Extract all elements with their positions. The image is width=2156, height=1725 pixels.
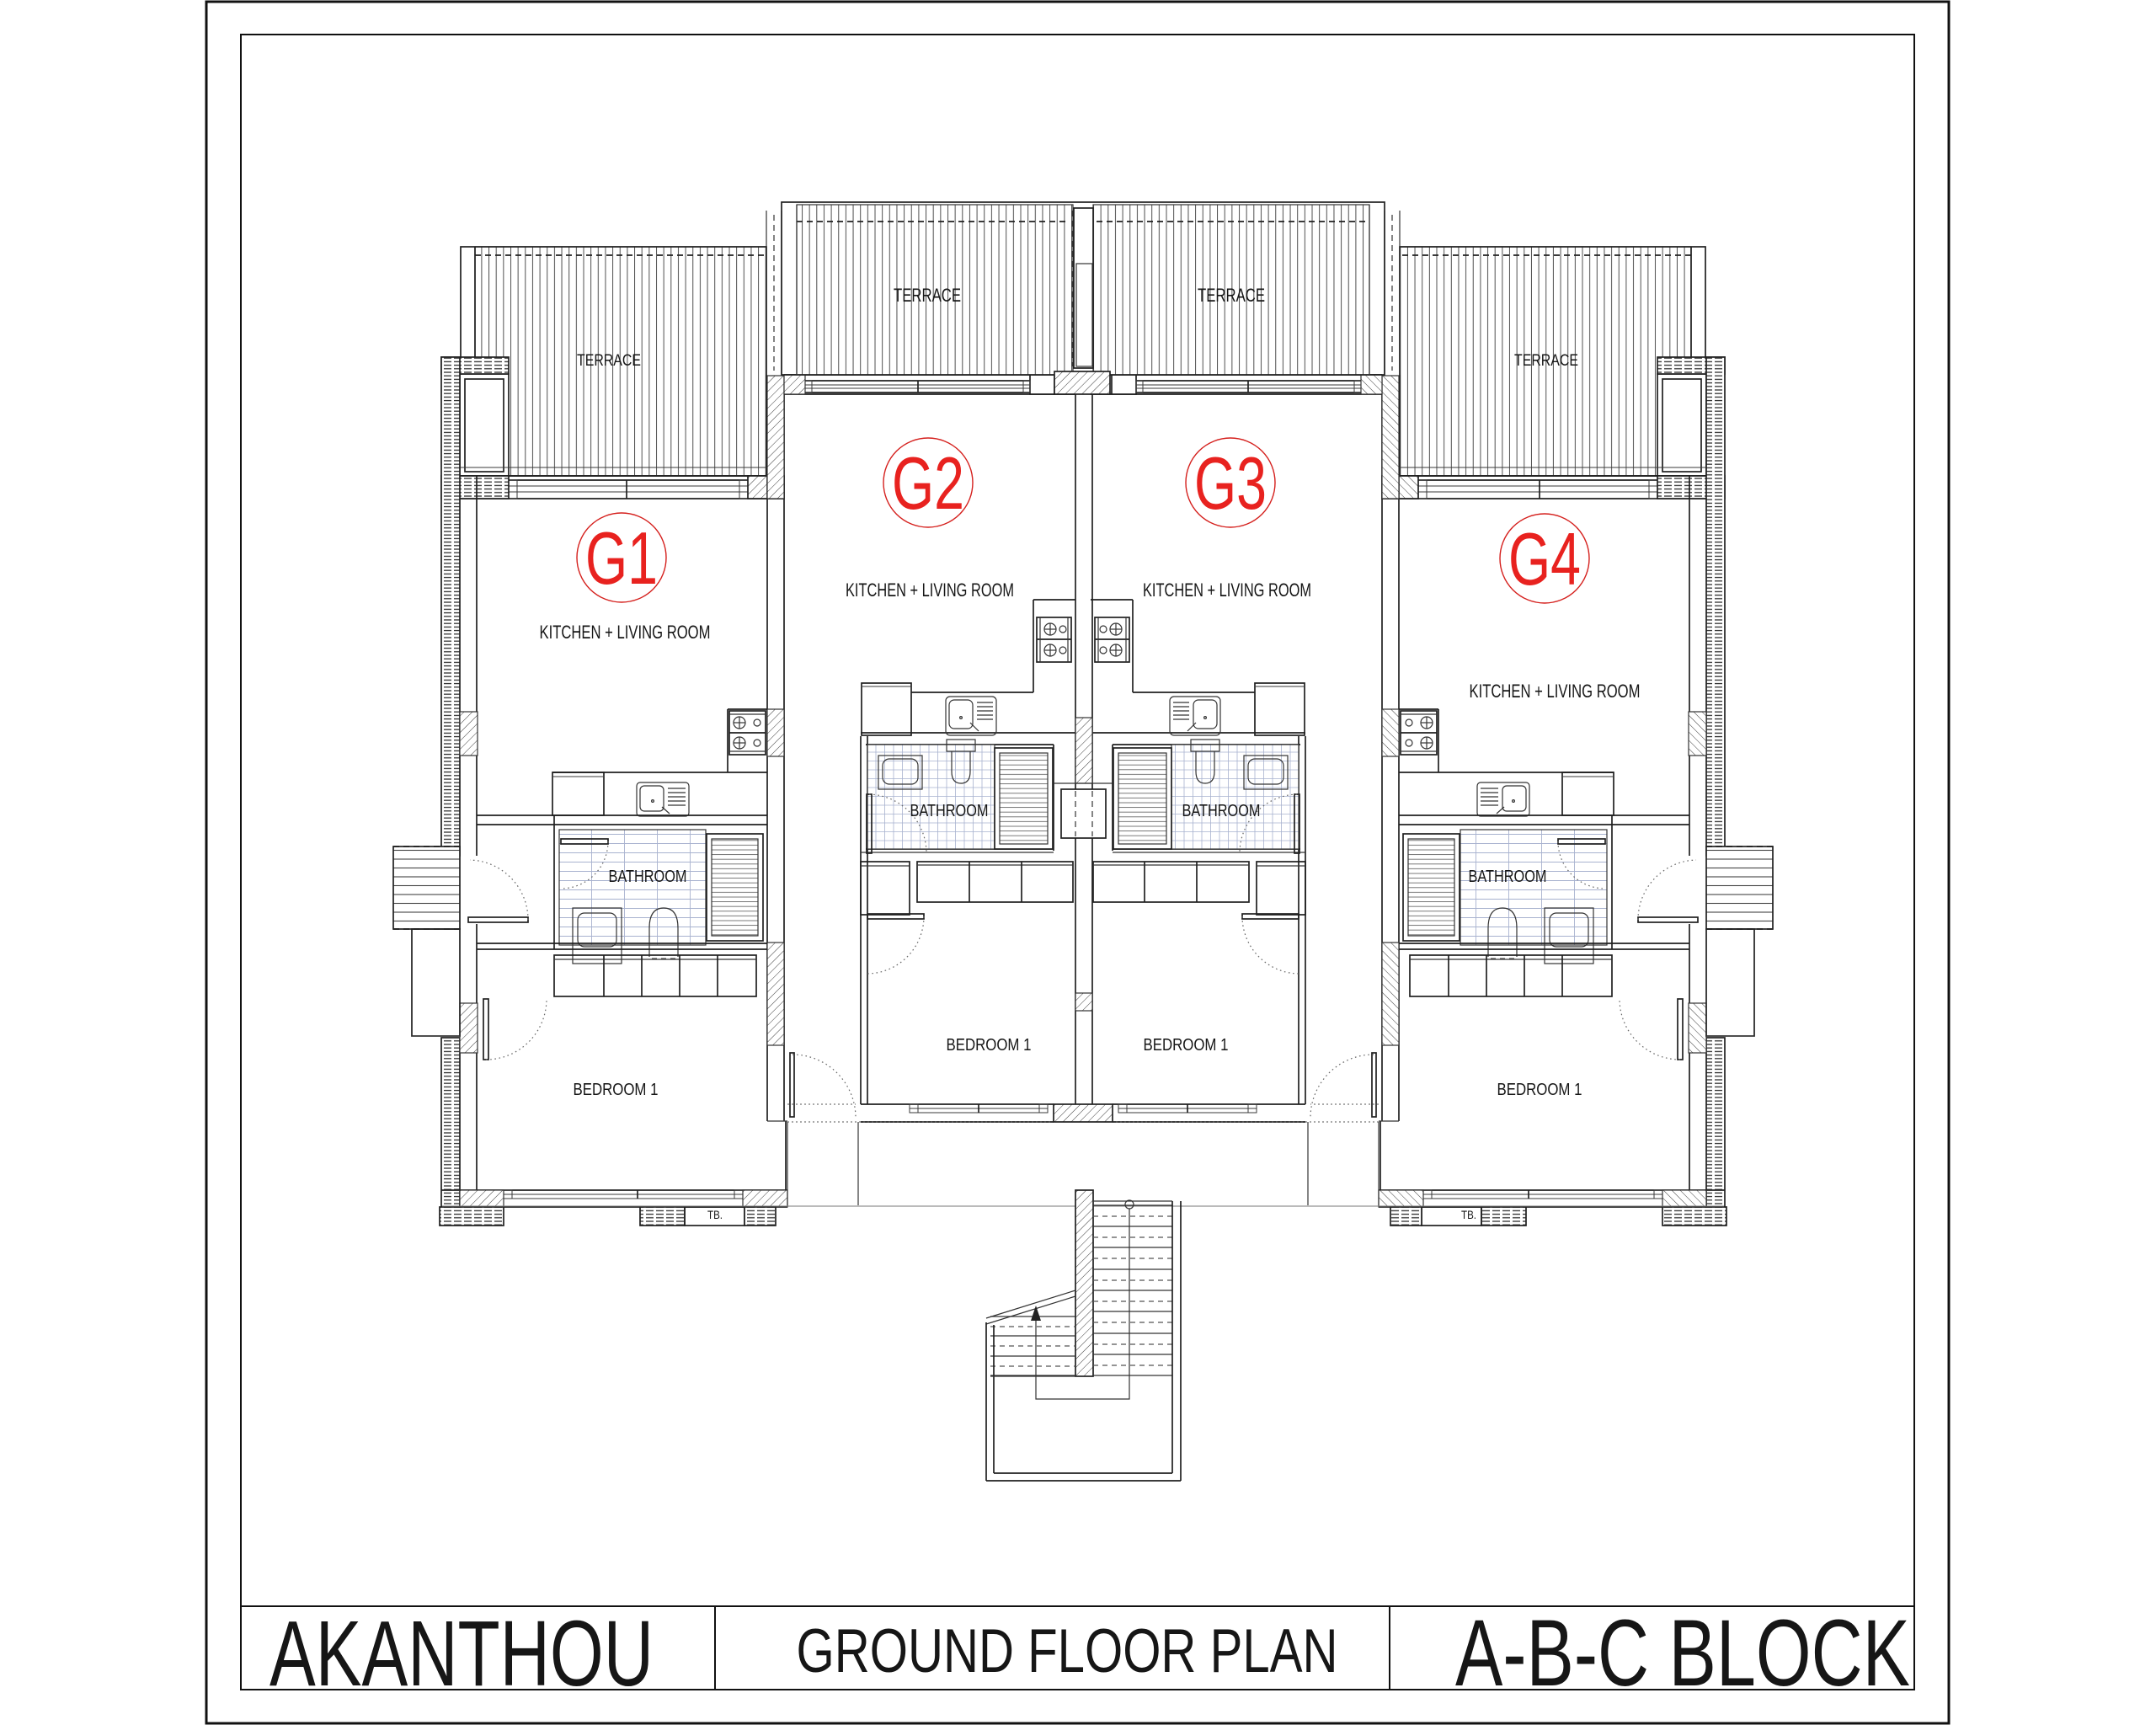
svg-text:TERRACE: TERRACE	[1514, 352, 1578, 370]
svg-text:BEDROOM 1: BEDROOM 1	[574, 1081, 659, 1099]
svg-text:BEDROOM 1: BEDROOM 1	[1144, 1036, 1229, 1055]
svg-text:TERRACE: TERRACE	[577, 352, 641, 370]
svg-text:TERRACE: TERRACE	[894, 285, 961, 306]
svg-text:KITCHEN + LIVING ROOM: KITCHEN + LIVING ROOM	[1143, 579, 1311, 601]
svg-text:TB.: TB.	[1461, 1208, 1476, 1221]
svg-text:BATHROOM: BATHROOM	[910, 802, 989, 820]
svg-text:G1: G1	[585, 516, 658, 600]
svg-text:KITCHEN + LIVING ROOM: KITCHEN + LIVING ROOM	[1470, 681, 1641, 702]
svg-text:BEDROOM 1: BEDROOM 1	[1497, 1081, 1582, 1099]
svg-text:A-B-C BLOCK: A-B-C BLOCK	[1455, 1600, 1910, 1706]
svg-text:G3: G3	[1194, 441, 1267, 525]
svg-text:GROUND FLOOR PLAN: GROUND FLOOR PLAN	[797, 1617, 1338, 1685]
svg-text:G4: G4	[1508, 517, 1581, 601]
svg-text:AKANTHOU: AKANTHOU	[269, 1602, 654, 1706]
svg-text:KITCHEN + LIVING ROOM: KITCHEN + LIVING ROOM	[846, 579, 1014, 601]
svg-text:BEDROOM 1: BEDROOM 1	[947, 1036, 1032, 1055]
svg-text:BATHROOM: BATHROOM	[609, 868, 687, 886]
svg-text:TERRACE: TERRACE	[1198, 285, 1265, 306]
svg-text:TB.: TB.	[707, 1208, 723, 1221]
svg-text:KITCHEN + LIVING ROOM: KITCHEN + LIVING ROOM	[540, 622, 711, 643]
svg-text:BATHROOM: BATHROOM	[1469, 868, 1547, 886]
svg-text:G2: G2	[892, 441, 964, 525]
svg-text:BATHROOM: BATHROOM	[1182, 802, 1261, 820]
